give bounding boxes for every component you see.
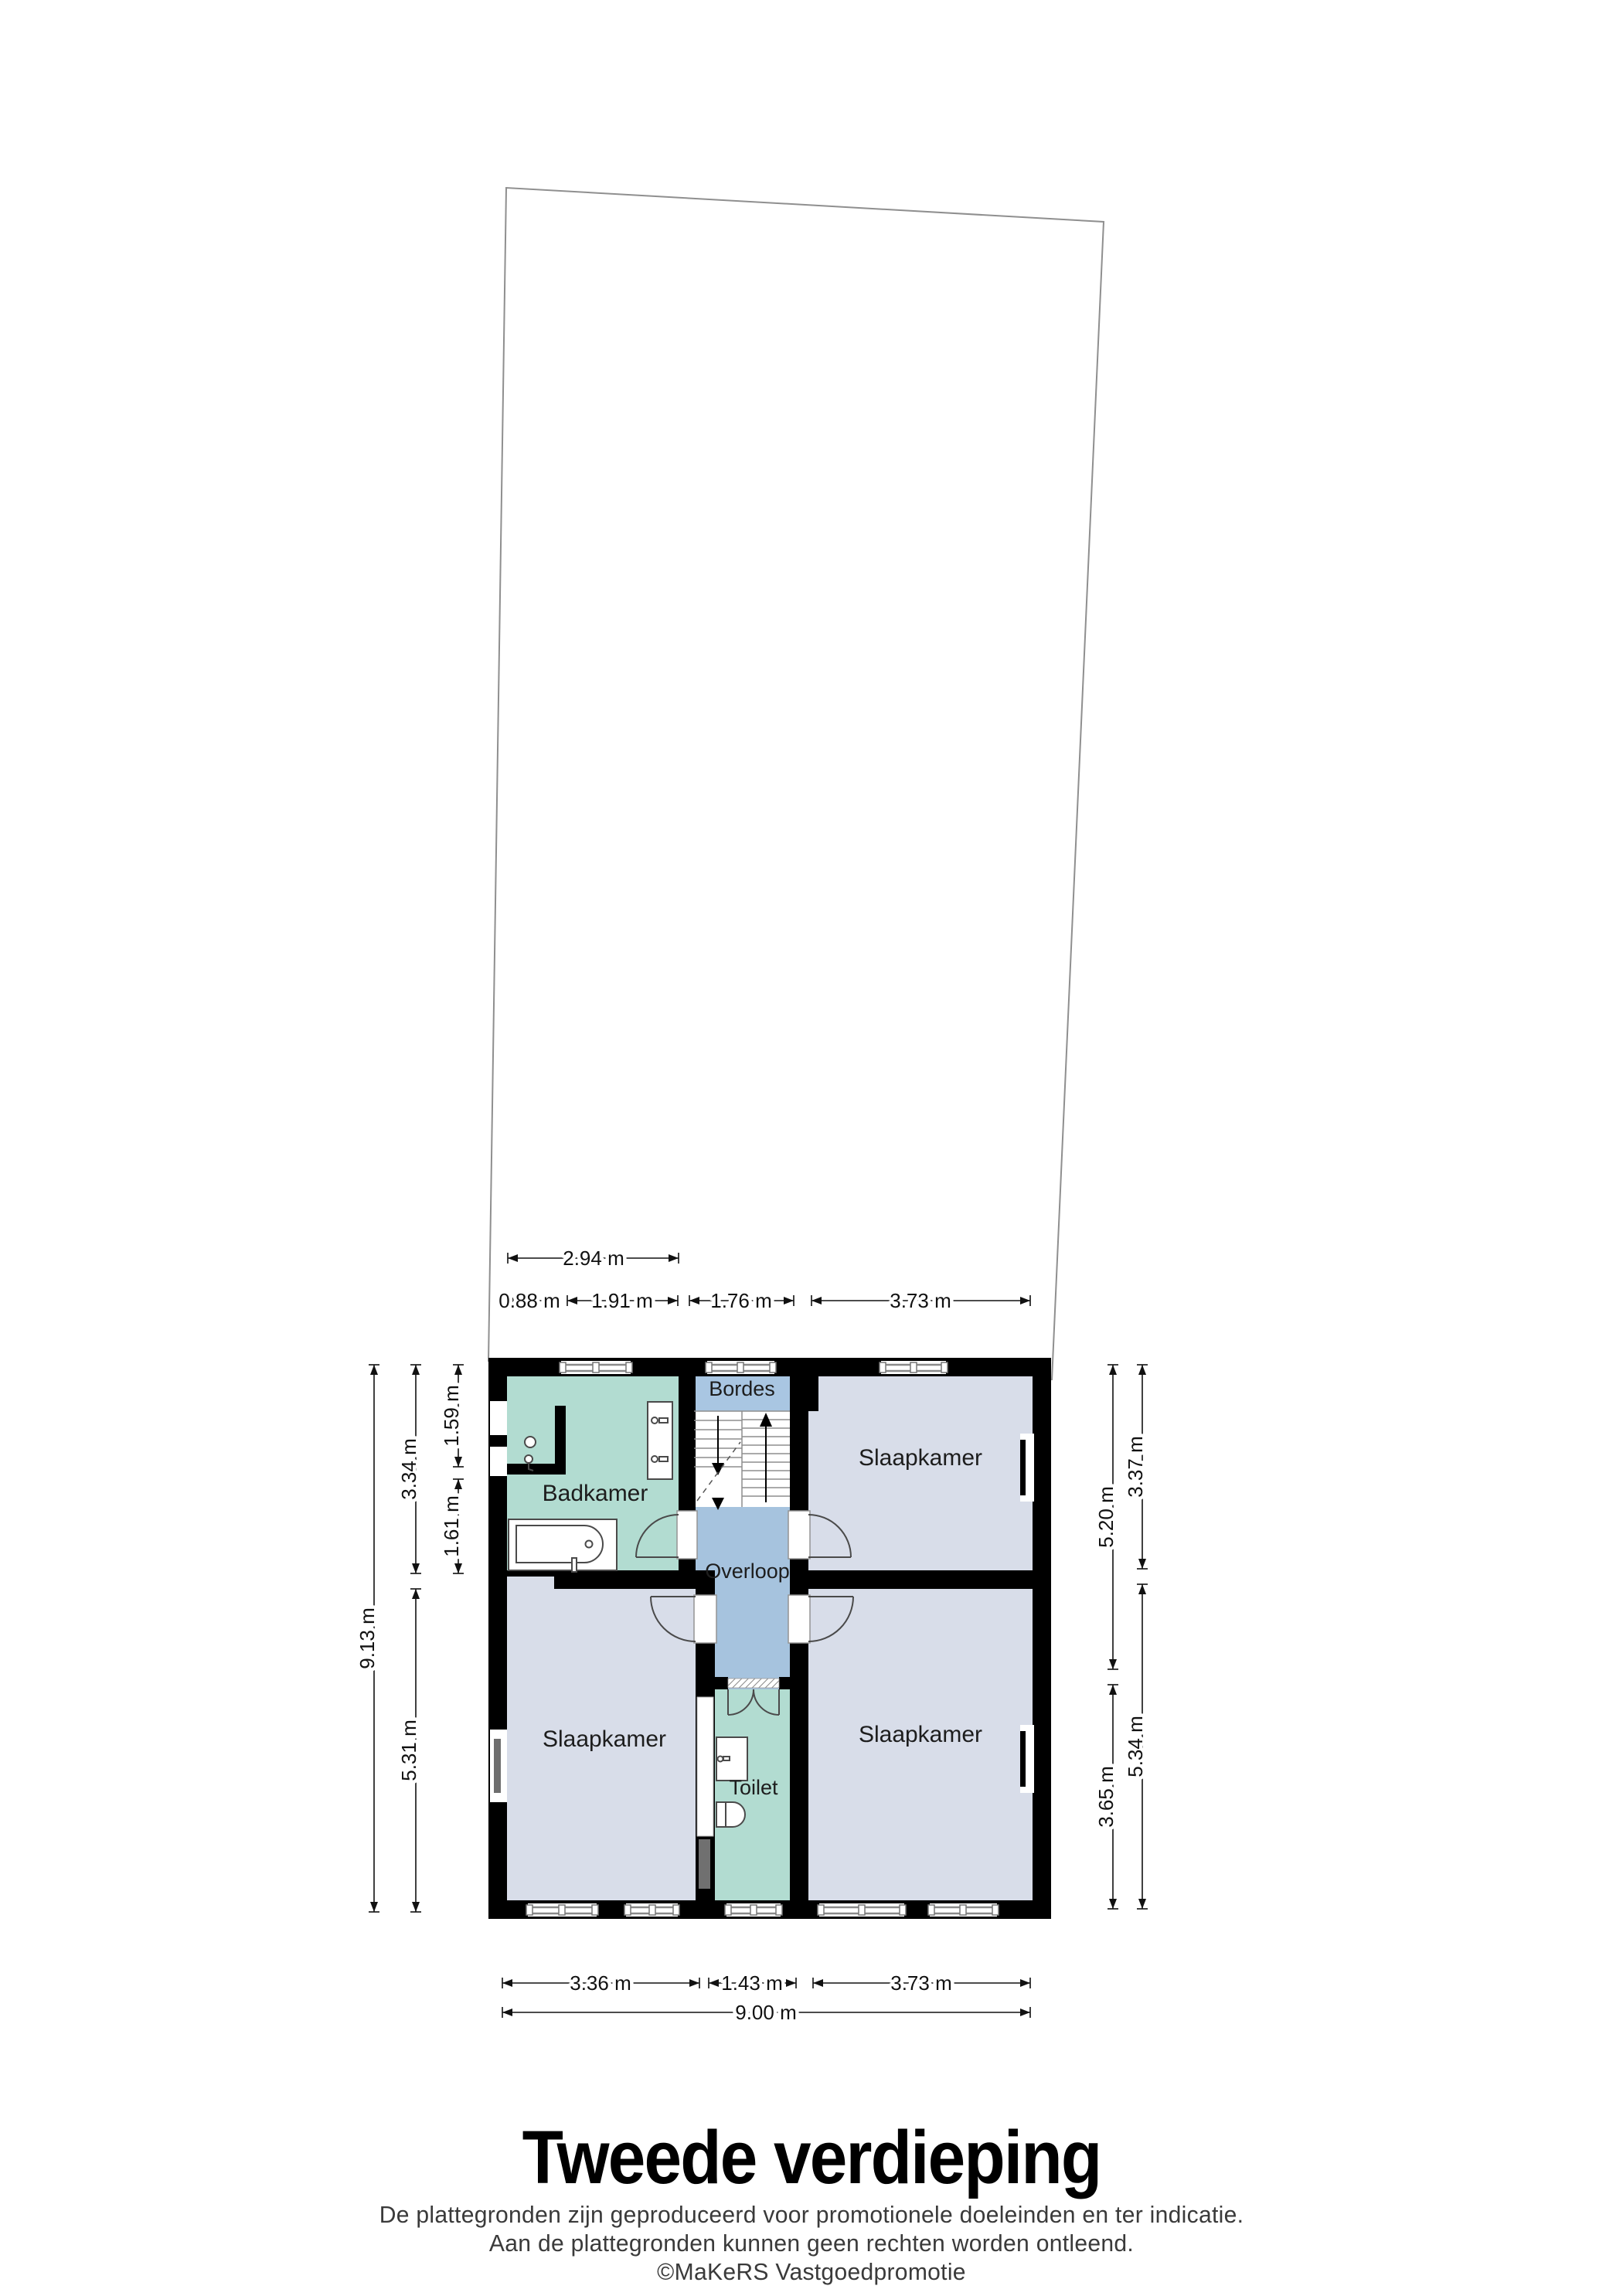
svg-text:3.73 m: 3.73 m xyxy=(890,1971,952,1995)
dim-top-badkamer: 2.94 m xyxy=(508,1247,679,1270)
svg-text:5.34 m: 5.34 m xyxy=(1124,1716,1147,1777)
floorplan-page: Badkamer Bordes Slaapkamer Overloop Slaa… xyxy=(0,0,1623,2296)
wall-stair-left-a xyxy=(679,1376,696,1512)
wall-shower-horizontal xyxy=(507,1464,566,1475)
slaapkamer-linksonder-alcove xyxy=(507,1577,554,1589)
svg-text:3.34 m: 3.34 m xyxy=(397,1438,420,1500)
svg-text:1.61 m: 1.61 m xyxy=(440,1495,463,1557)
niche-bar-slaapkamer-ro xyxy=(1020,1731,1026,1787)
bathtub xyxy=(509,1519,617,1572)
window-slaapkamer-rb-top xyxy=(880,1361,948,1374)
dim-top-seg-b: 1.91 m xyxy=(567,1289,678,1312)
wall-mid-left xyxy=(554,1570,696,1589)
svg-text:3.37 m: 3.37 m xyxy=(1124,1436,1147,1498)
dim-left-boven: 3.34 m xyxy=(397,1365,421,1573)
door-jamb-slaapkamer-ro xyxy=(788,1595,810,1643)
wall-mid-left-thin xyxy=(507,1570,554,1577)
toilet-partition xyxy=(697,1697,713,1836)
svg-text:1.76 m: 1.76 m xyxy=(710,1289,772,1312)
window-badkamer-top xyxy=(560,1361,632,1374)
niche-badkamer-left-a xyxy=(490,1401,507,1435)
svg-text:1.59 m: 1.59 m xyxy=(440,1385,463,1447)
svg-text:3.65 m: 3.65 m xyxy=(1094,1766,1118,1828)
dim-right-buiten-boven: 3.37 m xyxy=(1124,1365,1148,1569)
washbasin-counter xyxy=(648,1402,672,1479)
door-jamb-badkamer xyxy=(677,1511,697,1559)
dim-left-badkamer-onder: 1.61 m xyxy=(440,1479,464,1573)
wall-stub-slaapkamer-rb xyxy=(808,1376,818,1411)
dim-left-totaal: 9.13 m xyxy=(356,1365,379,1912)
disclaimer-line-1: De plattegronden zijn geproduceerd voor … xyxy=(25,2200,1599,2229)
floor-title: Tweede verdieping xyxy=(81,2114,1542,2201)
window-slaapkamer-lo-b xyxy=(624,1903,679,1917)
room-label-slaapkamer-linksonder: Slaapkamer xyxy=(543,1726,666,1752)
svg-text:9.13 m: 9.13 m xyxy=(356,1607,379,1669)
window-slaapkamer-ro-a xyxy=(818,1903,906,1917)
wall-toilet-stub-left xyxy=(715,1677,728,1689)
dim-top-slaapkamer: 3.73 m xyxy=(811,1289,1030,1312)
overloop-floor-lower xyxy=(715,1570,790,1689)
wall-mid-right xyxy=(808,1570,1033,1589)
svg-text:3.36 m: 3.36 m xyxy=(570,1971,631,1995)
svg-text:9.00 m: 9.00 m xyxy=(735,2001,797,2024)
door-jamb-slaapkamer-rb xyxy=(788,1511,810,1559)
dim-bottom-toilet: 1.43 m xyxy=(709,1971,796,1995)
room-label-overloop: Overloop xyxy=(705,1560,790,1583)
dim-right-binnen-boven: 5.20 m xyxy=(1094,1365,1118,1669)
wall-corridor-right-b xyxy=(790,1557,808,1597)
svg-text:5.20 m: 5.20 m xyxy=(1094,1486,1118,1548)
toilet-bowl xyxy=(716,1802,745,1827)
disclaimer-copyright: ©MaKeRS Vastgoedpromotie xyxy=(25,2257,1599,2286)
svg-text:1.91 m: 1.91 m xyxy=(591,1289,653,1312)
disclaimer: De plattegronden zijn geproduceerd voor … xyxy=(25,2200,1599,2286)
dim-bottom-slaapkamer-rechts: 3.73 m xyxy=(813,1971,1030,1995)
floorplan-canvas: Badkamer Bordes Slaapkamer Overloop Slaa… xyxy=(0,0,1623,2296)
wall-toilet-stub-right xyxy=(779,1677,808,1689)
niche-bar-slaapkamer-rb xyxy=(1020,1440,1026,1495)
svg-text:3.73 m: 3.73 m xyxy=(890,1289,951,1312)
dim-left-onder: 5.31 m xyxy=(397,1589,421,1912)
svg-text:0.88 m: 0.88 m xyxy=(498,1289,560,1312)
window-bordes-top xyxy=(706,1361,776,1374)
wall-exterior-right xyxy=(1033,1358,1051,1919)
slaapkamer-rechtsboven-floor xyxy=(808,1376,1033,1570)
dimensions-bottom: 3.36 m 1.43 m 3.73 m 9.00 m xyxy=(502,1971,1030,2024)
svg-text:1.43 m: 1.43 m xyxy=(721,1971,783,1995)
toilet-sink xyxy=(716,1737,747,1781)
wall-corridor-right-a xyxy=(790,1376,808,1512)
disclaimer-line-2: Aan de plattegronden kunnen geen rechten… xyxy=(25,2229,1599,2257)
dimensions-left: 9.13 m 3.34 m 5.31 m 1.59 m 1.61 m xyxy=(356,1365,464,1912)
door-jamb-slaapkamer-lo xyxy=(694,1595,716,1643)
dim-right-buiten-onder: 5.34 m xyxy=(1124,1584,1148,1909)
room-label-toilet: Toilet xyxy=(729,1776,778,1799)
toilet-duct xyxy=(699,1839,710,1889)
dim-top-trap: 1.76 m xyxy=(689,1289,794,1312)
parcel-outline xyxy=(488,188,1104,1380)
svg-text:2.94 m: 2.94 m xyxy=(563,1247,624,1270)
wall-corridor-left-b xyxy=(696,1641,715,1689)
dim-right-binnen-onder: 3.65 m xyxy=(1094,1685,1118,1909)
room-label-slaapkamer-rechtsonder: Slaapkamer xyxy=(859,1722,982,1747)
dim-bottom-totaal: 9.00 m xyxy=(502,2001,1030,2024)
dim-bottom-slaapkamer-links: 3.36 m xyxy=(502,1971,699,1995)
dimensions-right: 5.20 m 3.65 m 3.37 m 5.34 m xyxy=(1094,1365,1148,1909)
wall-exterior-left xyxy=(488,1358,507,1919)
window-slaapkamer-ro-b xyxy=(928,1903,999,1917)
niche-bar-slaapkamer-lo xyxy=(494,1739,501,1793)
dimensions-top: 2.94 m 0.88 m 1.91 m 1.76 m 3.73 m xyxy=(498,1247,1030,1312)
window-slaapkamer-lo-a xyxy=(526,1903,598,1917)
dim-left-badkamer-boven: 1.59 m xyxy=(440,1365,464,1467)
window-toilet-bottom xyxy=(725,1903,782,1917)
dim-top-seg-a: 0.88 m xyxy=(498,1289,560,1312)
room-label-bordes: Bordes xyxy=(709,1377,775,1400)
room-label-badkamer: Badkamer xyxy=(543,1481,648,1506)
svg-text:5.31 m: 5.31 m xyxy=(397,1719,420,1781)
niche-badkamer-left-b xyxy=(490,1447,507,1476)
room-label-slaapkamer-rechtsboven: Slaapkamer xyxy=(859,1445,982,1471)
